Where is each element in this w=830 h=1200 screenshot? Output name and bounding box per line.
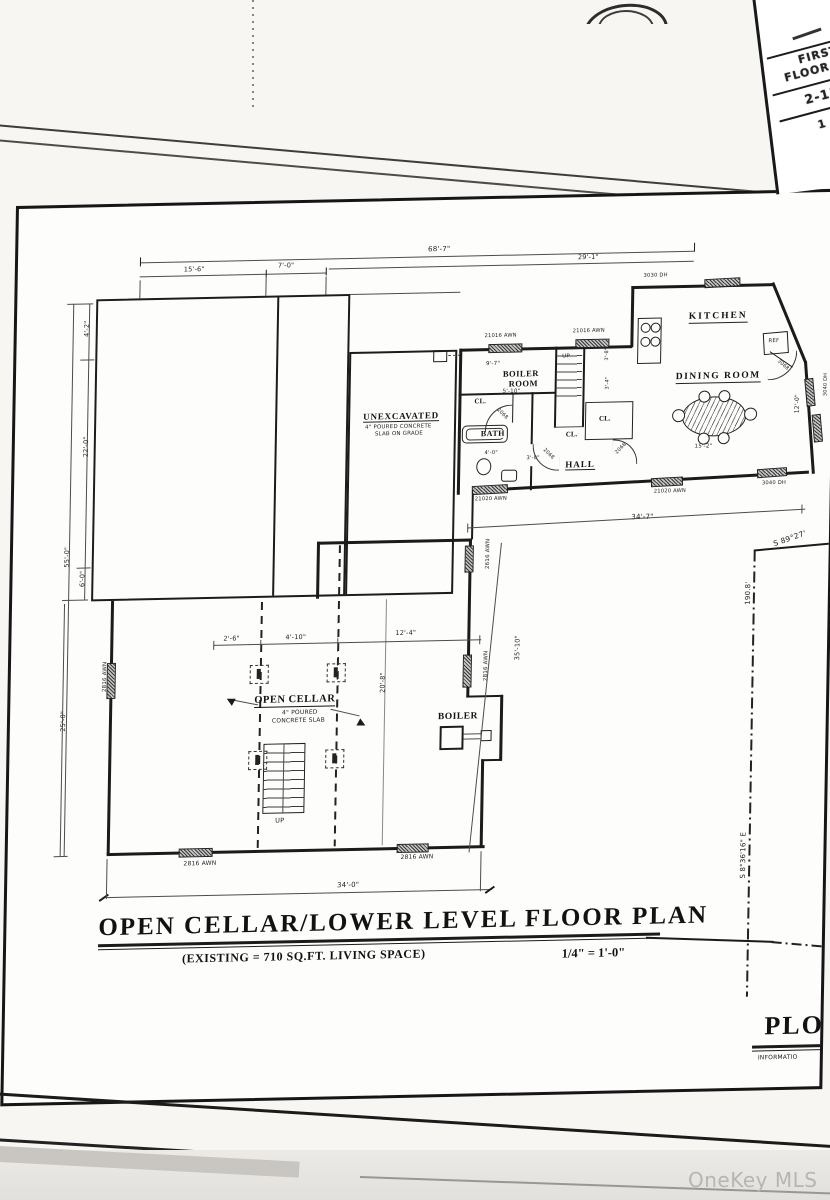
site-line	[350, 292, 460, 295]
window-hatch	[651, 476, 683, 487]
dim-tick	[467, 524, 468, 533]
equipment-label-boiler: BOILER	[438, 712, 478, 722]
plot-plan-title-partial: PLO	[764, 1012, 824, 1039]
room-label-kitchen: KITCHEN	[689, 312, 748, 324]
dim-tick	[80, 359, 94, 360]
room-label-boiler-room: ROOM	[509, 379, 539, 388]
dim-tick	[77, 567, 91, 568]
window-label: 2616 AWN	[486, 539, 492, 570]
dim-line	[64, 304, 75, 856]
window-label: 21020 AWN	[654, 489, 686, 495]
leader-arrowhead	[225, 695, 236, 706]
chair-icon	[718, 432, 730, 444]
room-label-closet: CL.	[566, 431, 578, 438]
sheet-scale: 1/4" = 1'-0"	[562, 946, 626, 960]
dim-first-floor-width: 34'-7"	[631, 514, 653, 521]
wall-segment	[471, 491, 474, 539]
dim-tick	[54, 856, 68, 857]
dim-extension	[265, 278, 266, 296]
dim-extension	[325, 276, 326, 294]
dim-tick	[213, 641, 214, 650]
window-hatch	[757, 467, 787, 478]
watermark: OneKey MLS	[688, 1168, 817, 1192]
plot-title-underline	[752, 1049, 826, 1052]
dim-line	[106, 889, 492, 898]
window-hatch	[464, 545, 473, 572]
window-label: 2816 AWN	[183, 861, 216, 868]
dim-cellar: 4'-10"	[285, 634, 306, 641]
dim-stair: 3'-4"	[606, 377, 611, 390]
sheet-content: 68'-7" 15'-6" 7'-0" 29'-1" 4'-2" 22'-0" …	[3, 192, 830, 1103]
wall-segment	[457, 349, 462, 495]
wall-segment	[480, 759, 484, 847]
boiler-pipe-line	[464, 733, 481, 734]
room-label-dining: DINING ROOM	[676, 371, 761, 383]
lot-line	[646, 937, 774, 943]
fragment-text: 1 O	[816, 113, 830, 132]
dim-stair: 3'-8"	[605, 348, 610, 361]
dim-left: 4'-2"	[84, 320, 91, 337]
window-label: 3030 DH	[643, 273, 667, 279]
dim-tick	[479, 635, 480, 644]
window-label: 3040 DH	[762, 481, 786, 487]
column-marker	[325, 749, 344, 768]
dim-tick	[337, 638, 338, 647]
dim-tick	[801, 505, 802, 514]
column-post	[332, 753, 336, 763]
column-marker	[250, 665, 269, 684]
dim-tick	[260, 640, 261, 649]
dim-line	[140, 251, 694, 264]
window-hatch	[575, 339, 609, 349]
scribble-mark	[792, 28, 821, 41]
dim-tick	[62, 599, 88, 601]
dim-cellar: 2'-6"	[223, 635, 240, 642]
window-hatch	[397, 843, 429, 853]
dim-cellar-depth: 20'-8"	[379, 672, 386, 693]
dim-right-depth: 35'-10"	[514, 635, 521, 660]
window-hatch	[472, 484, 508, 495]
landing-line	[554, 426, 583, 428]
other-sheet-titleblock: FIRST FLOOR P 2-13 1 O	[748, 0, 830, 196]
dim-boiler-room: 9'-7"	[486, 362, 500, 368]
dining-table-icon	[682, 396, 747, 437]
plot-plan-subtitle-partial: INFORMATIO	[758, 1055, 798, 1062]
room-label-hall: HALL	[565, 460, 595, 471]
dim-left-overall: 55'-0"	[64, 547, 71, 568]
dim-line	[382, 599, 387, 845]
sheet-subtitle: (EXISTING = 710 SQ.FT. LIVING SPACE)	[152, 947, 456, 965]
window-hatch	[804, 378, 815, 407]
dim-boiler-room: 5'-10"	[503, 389, 521, 395]
partition-wall	[531, 392, 533, 444]
unexcavated-outline	[345, 350, 457, 596]
foundation-outline	[91, 294, 350, 601]
dim-extension	[480, 851, 482, 891]
dim-left-bay: 15'-6"	[184, 266, 205, 273]
toilet-icon	[476, 458, 491, 475]
dim-line	[469, 543, 502, 853]
room-label-boiler-room: BOILER	[503, 369, 539, 378]
crawl-vent-box	[433, 350, 447, 362]
dim-tick	[694, 243, 695, 252]
dim-tick	[140, 257, 141, 266]
dim-line	[329, 261, 694, 270]
open-cellar-note: CONCRETE SLAB	[272, 718, 325, 725]
dim-tick	[326, 267, 327, 275]
dim-tick	[266, 270, 267, 278]
refrigerator-label: REF	[768, 339, 779, 345]
column-post	[257, 669, 261, 679]
wall-segment	[630, 286, 634, 347]
wall-segment	[107, 601, 114, 855]
boiler-pip-line	[464, 738, 481, 739]
wall-segment	[631, 283, 774, 288]
room-label-unexcavated: UNEXCAVATED	[363, 411, 439, 423]
column-post	[255, 755, 259, 765]
dim-left: 22'-0"	[83, 436, 90, 457]
chair-icon	[744, 407, 757, 420]
dim-line	[213, 639, 481, 646]
leader-arrowhead	[356, 718, 367, 729]
window-hatch	[462, 654, 472, 687]
dim-left: 6'-0"	[79, 571, 86, 588]
other-sheet-fragment: FIRST FLOOR P 2-13 1 O	[752, 0, 830, 195]
room-label-closet: CL.	[474, 398, 486, 405]
property-bearing: S 8°36'16" E	[740, 832, 748, 879]
floorplan-sheet: 68'-7" 15'-6" 7'-0" 29'-1" 4'-2" 22'-0" …	[0, 189, 830, 1107]
sink-icon	[501, 470, 517, 482]
window-label: 21020 AWN	[475, 497, 507, 503]
plot-title-underline	[752, 1044, 826, 1048]
column-post	[334, 667, 338, 677]
lot-line-dashed	[772, 941, 830, 947]
binding-speckle-mark	[252, 0, 254, 108]
dim-overall-width: 68'-7"	[428, 246, 450, 253]
unexcavated-note: SLAB ON GRADE	[375, 431, 423, 438]
property-length: 190.8'	[745, 581, 752, 604]
window-label: 21016 AWN	[485, 334, 517, 340]
dim-extension	[139, 280, 140, 298]
column-marker	[327, 663, 346, 682]
dim-left: 25'-0"	[60, 711, 67, 732]
stair-up-label: UP	[562, 354, 570, 360]
window-hatch	[488, 343, 522, 353]
dim-cellar: 12'-4"	[395, 630, 416, 637]
paper-curl-marks	[582, 0, 668, 24]
dim-bath: 4'-0"	[484, 451, 497, 456]
property-line	[754, 542, 830, 551]
boiler-box	[439, 726, 463, 751]
window-hatch	[704, 277, 740, 288]
window-label: 3040 DH	[824, 373, 829, 396]
stair-up-label: UP	[275, 817, 284, 824]
dim-dining: 15'-2"	[694, 444, 712, 450]
window-label: 2816 AWN	[400, 854, 433, 861]
dim-dining: 12'-0"	[795, 394, 801, 413]
dim-cellar-width: 34'-0"	[337, 882, 359, 889]
open-cellar-note: 4" POURED	[282, 710, 318, 717]
paper-edge-line	[0, 1092, 830, 1149]
window-hatch	[179, 848, 213, 858]
paper-edge-line	[0, 124, 786, 195]
dim-mid-bay: 7'-0"	[278, 262, 295, 269]
dim-right-bay: 29'-1"	[578, 254, 599, 261]
property-line	[746, 551, 755, 997]
window-label: 2816 AWN	[103, 662, 109, 693]
wall-segment	[499, 695, 503, 761]
leader-line	[330, 709, 359, 717]
dim-line	[140, 272, 327, 277]
dim-slash	[485, 886, 495, 894]
window-hatch	[812, 414, 823, 443]
closet-outline	[585, 401, 634, 440]
window-label: 21016 AWN	[573, 329, 605, 335]
photographed-floorplan-page: { "photo": { "watermark": "OneKey MLS" }…	[0, 0, 830, 1200]
room-label-open-cellar: OPEN CELLAR	[254, 694, 335, 707]
